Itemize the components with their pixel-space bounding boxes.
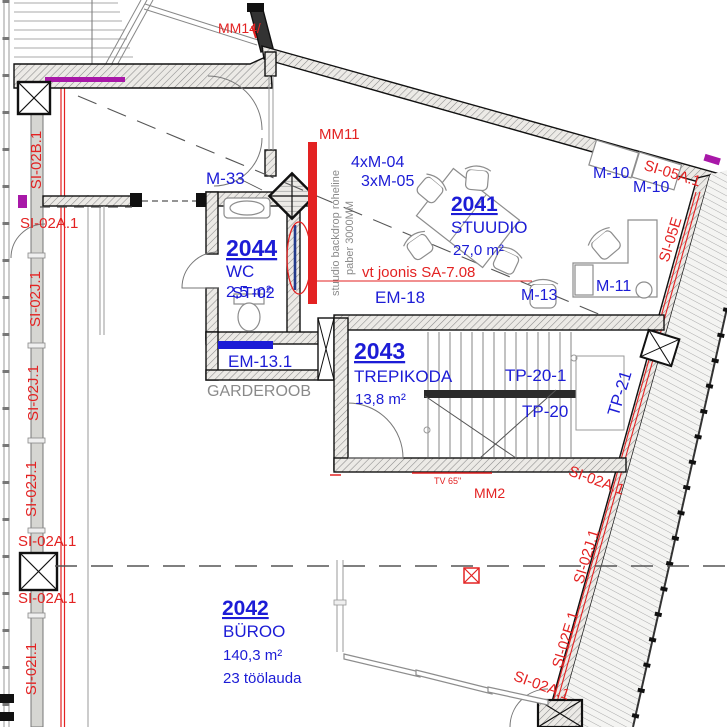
label-mm14: MM14/ [218, 20, 261, 36]
room-2042-number: 2042 [222, 597, 269, 620]
em13-blue-bar [218, 341, 273, 349]
red-marker-square [464, 568, 479, 583]
room-2041-area: 27,0 m² [453, 242, 504, 259]
label-see-drawing: vt joonis SA-7.08 [362, 264, 475, 281]
mm14-wall-cap [247, 3, 264, 12]
room-2042-name: BÜROO [223, 622, 285, 641]
stair-handrail [424, 390, 576, 398]
wall-tag-si02a1-mid1: SI-02A.1 [18, 533, 76, 550]
wall-tag-si02j1-1: SI-02J.1 [27, 271, 44, 327]
floor-plan-page: MM14/ MM11 vt joonis SA-7.08 TV 65" MM2 … [0, 0, 727, 727]
label-mm11: MM11 [319, 126, 360, 143]
membrane-magenta-strip [45, 77, 125, 82]
wall-tag-si02j1-2: SI-02J.1 [25, 365, 42, 421]
wall-tag-si02a1-mid2: SI-02A.1 [18, 590, 76, 607]
wall-tag-si02i1: SI-02I.1 [23, 643, 40, 696]
note-backdrop-line1: stuudio backdrop roheline [330, 170, 342, 296]
hall-top-wall [43, 196, 135, 206]
room-2041-number: 2041 [451, 193, 498, 216]
door-post-left [130, 193, 142, 207]
room-2041-name: STUUDIO [451, 218, 528, 237]
hall-membrane-mark [18, 195, 27, 208]
room-2043-area: 13,8 m² [355, 391, 406, 408]
chair [463, 165, 491, 191]
room-2044-number: 2044 [226, 235, 277, 261]
tag-m13: M-13 [521, 287, 558, 304]
tag-tp20: TP-20 [522, 402, 568, 421]
wall-tag-si02j1-3: SI-02J.1 [23, 461, 40, 517]
room-2043-name: TREPIKODA [354, 367, 453, 386]
wall-tag-si02b1: SI-02B.1 [28, 131, 45, 189]
column-left-middle [20, 553, 57, 590]
room-2043-number: 2043 [354, 338, 405, 364]
tag-tp20-1: TP-20-1 [505, 366, 566, 385]
note-backdrop-line2: paber 3000MM [344, 201, 356, 275]
tag-m11: M-11 [596, 278, 631, 295]
tag-m05: 3xM-05 [361, 173, 414, 190]
wall-tag-si02a1-top: SI-02A.1 [20, 215, 78, 232]
room-2042-area: 140,3 m² [223, 647, 282, 664]
room-2042-workplaces: 23 töölauda [223, 670, 302, 687]
backdrop-red-bar [308, 142, 317, 304]
label-mm2: MM2 [474, 485, 505, 501]
tag-em13-1: EM-13.1 [228, 352, 292, 371]
tag-m04: 4xM-04 [351, 154, 404, 171]
note-garderoob: GARDEROOB [207, 383, 311, 400]
floor-plan-canvas: MM14/ MM11 vt joonis SA-7.08 TV 65" MM2 … [0, 0, 727, 727]
wc-sink [224, 198, 270, 218]
tag-st02-overlap: ST-02 [232, 285, 275, 302]
column-top-left [18, 82, 50, 114]
label-tv: TV 65" [434, 476, 461, 486]
tag-em18: EM-18 [375, 288, 425, 307]
tag-m33: M-33 [206, 169, 245, 188]
tag-m10-a: M-10 [593, 165, 630, 182]
tag-m10-b: M-10 [633, 179, 670, 196]
room-2044-name: WC [226, 262, 254, 281]
